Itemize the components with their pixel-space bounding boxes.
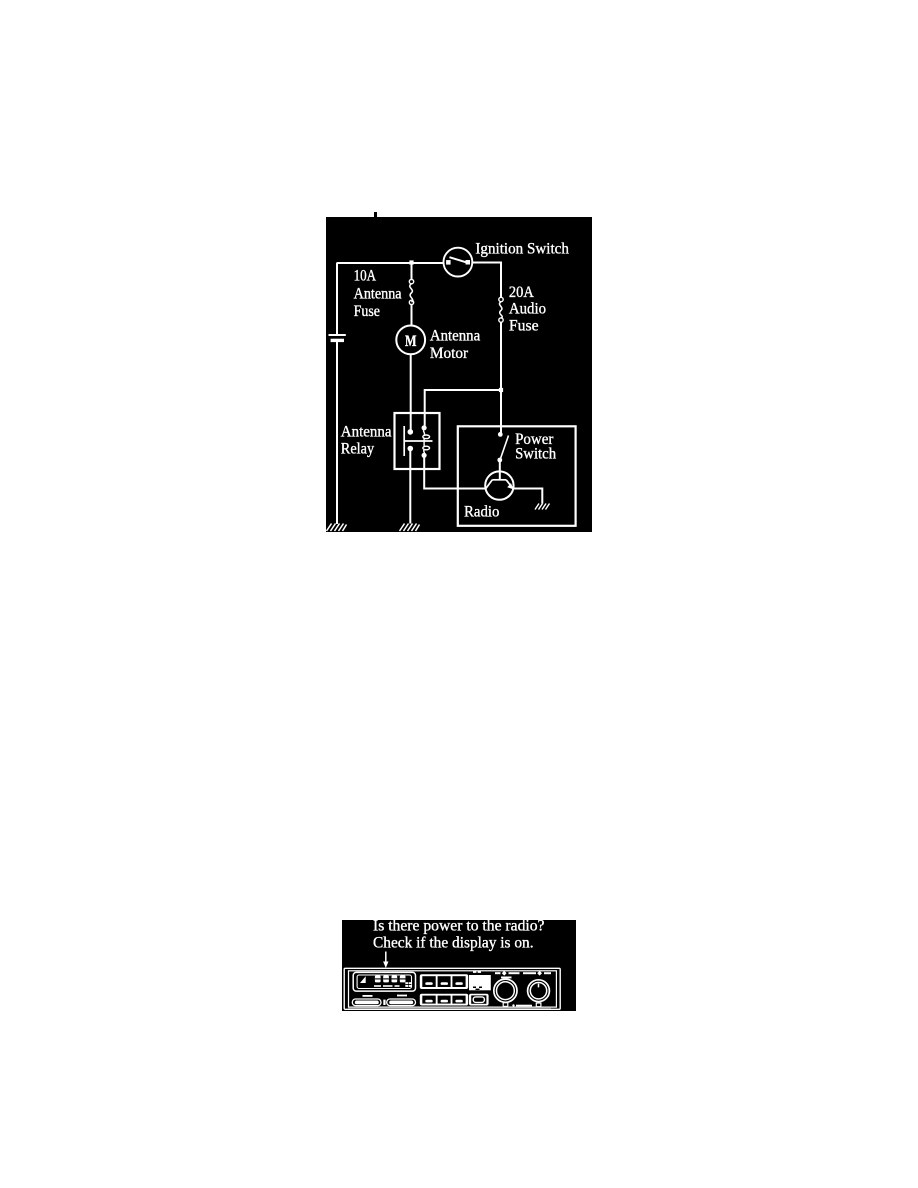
svg-text:20A: 20A: [509, 284, 534, 301]
svg-text:Switch: Switch: [515, 446, 556, 463]
svg-text:Audio: Audio: [509, 301, 546, 318]
svg-text:Antenna: Antenna: [341, 424, 392, 441]
svg-text:Antenna: Antenna: [354, 285, 402, 302]
svg-text:Fuse: Fuse: [509, 318, 539, 335]
svg-text:Fuse: Fuse: [354, 303, 380, 320]
svg-text:10A: 10A: [354, 268, 377, 285]
svg-text:Check if the display is on.: Check if the display is on.: [373, 935, 534, 952]
svg-text:M: M: [405, 333, 417, 350]
svg-text:Relay: Relay: [341, 441, 374, 458]
svg-text:Radio: Radio: [464, 504, 499, 521]
svg-text:Motor: Motor: [430, 345, 469, 362]
svg-text:Ignition Switch: Ignition Switch: [475, 240, 569, 257]
svg-text:Antenna: Antenna: [430, 327, 480, 344]
svg-text:Is there power to the radio?: Is there power to the radio?: [373, 920, 545, 935]
